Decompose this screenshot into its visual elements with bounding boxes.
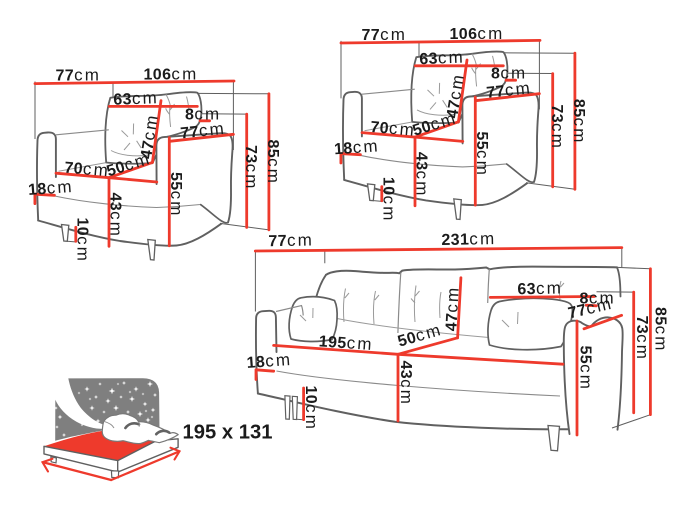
svg-text:73cm: 73cm [242, 145, 261, 191]
svg-text:63cm: 63cm [517, 279, 563, 299]
svg-text:106cm: 106cm [144, 65, 199, 84]
svg-text:55cm: 55cm [577, 346, 596, 392]
svg-text:195 x 131: 195 x 131 [183, 422, 273, 444]
svg-text:85cm: 85cm [651, 307, 670, 353]
svg-text:77cm: 77cm [268, 230, 314, 250]
svg-text:43cm: 43cm [397, 361, 416, 407]
svg-text:47cm: 47cm [441, 285, 462, 332]
svg-text:43cm: 43cm [106, 193, 125, 239]
svg-text:55cm: 55cm [167, 172, 186, 218]
svg-text:231cm: 231cm [441, 229, 496, 249]
svg-text:195cm: 195cm [318, 331, 374, 354]
svg-text:10cm: 10cm [74, 218, 93, 264]
svg-text:73cm: 73cm [633, 316, 652, 362]
svg-text:77cm: 77cm [56, 66, 102, 85]
svg-text:10cm: 10cm [302, 386, 321, 432]
svg-text:63cm: 63cm [113, 88, 159, 109]
svg-text:85cm: 85cm [264, 140, 283, 186]
